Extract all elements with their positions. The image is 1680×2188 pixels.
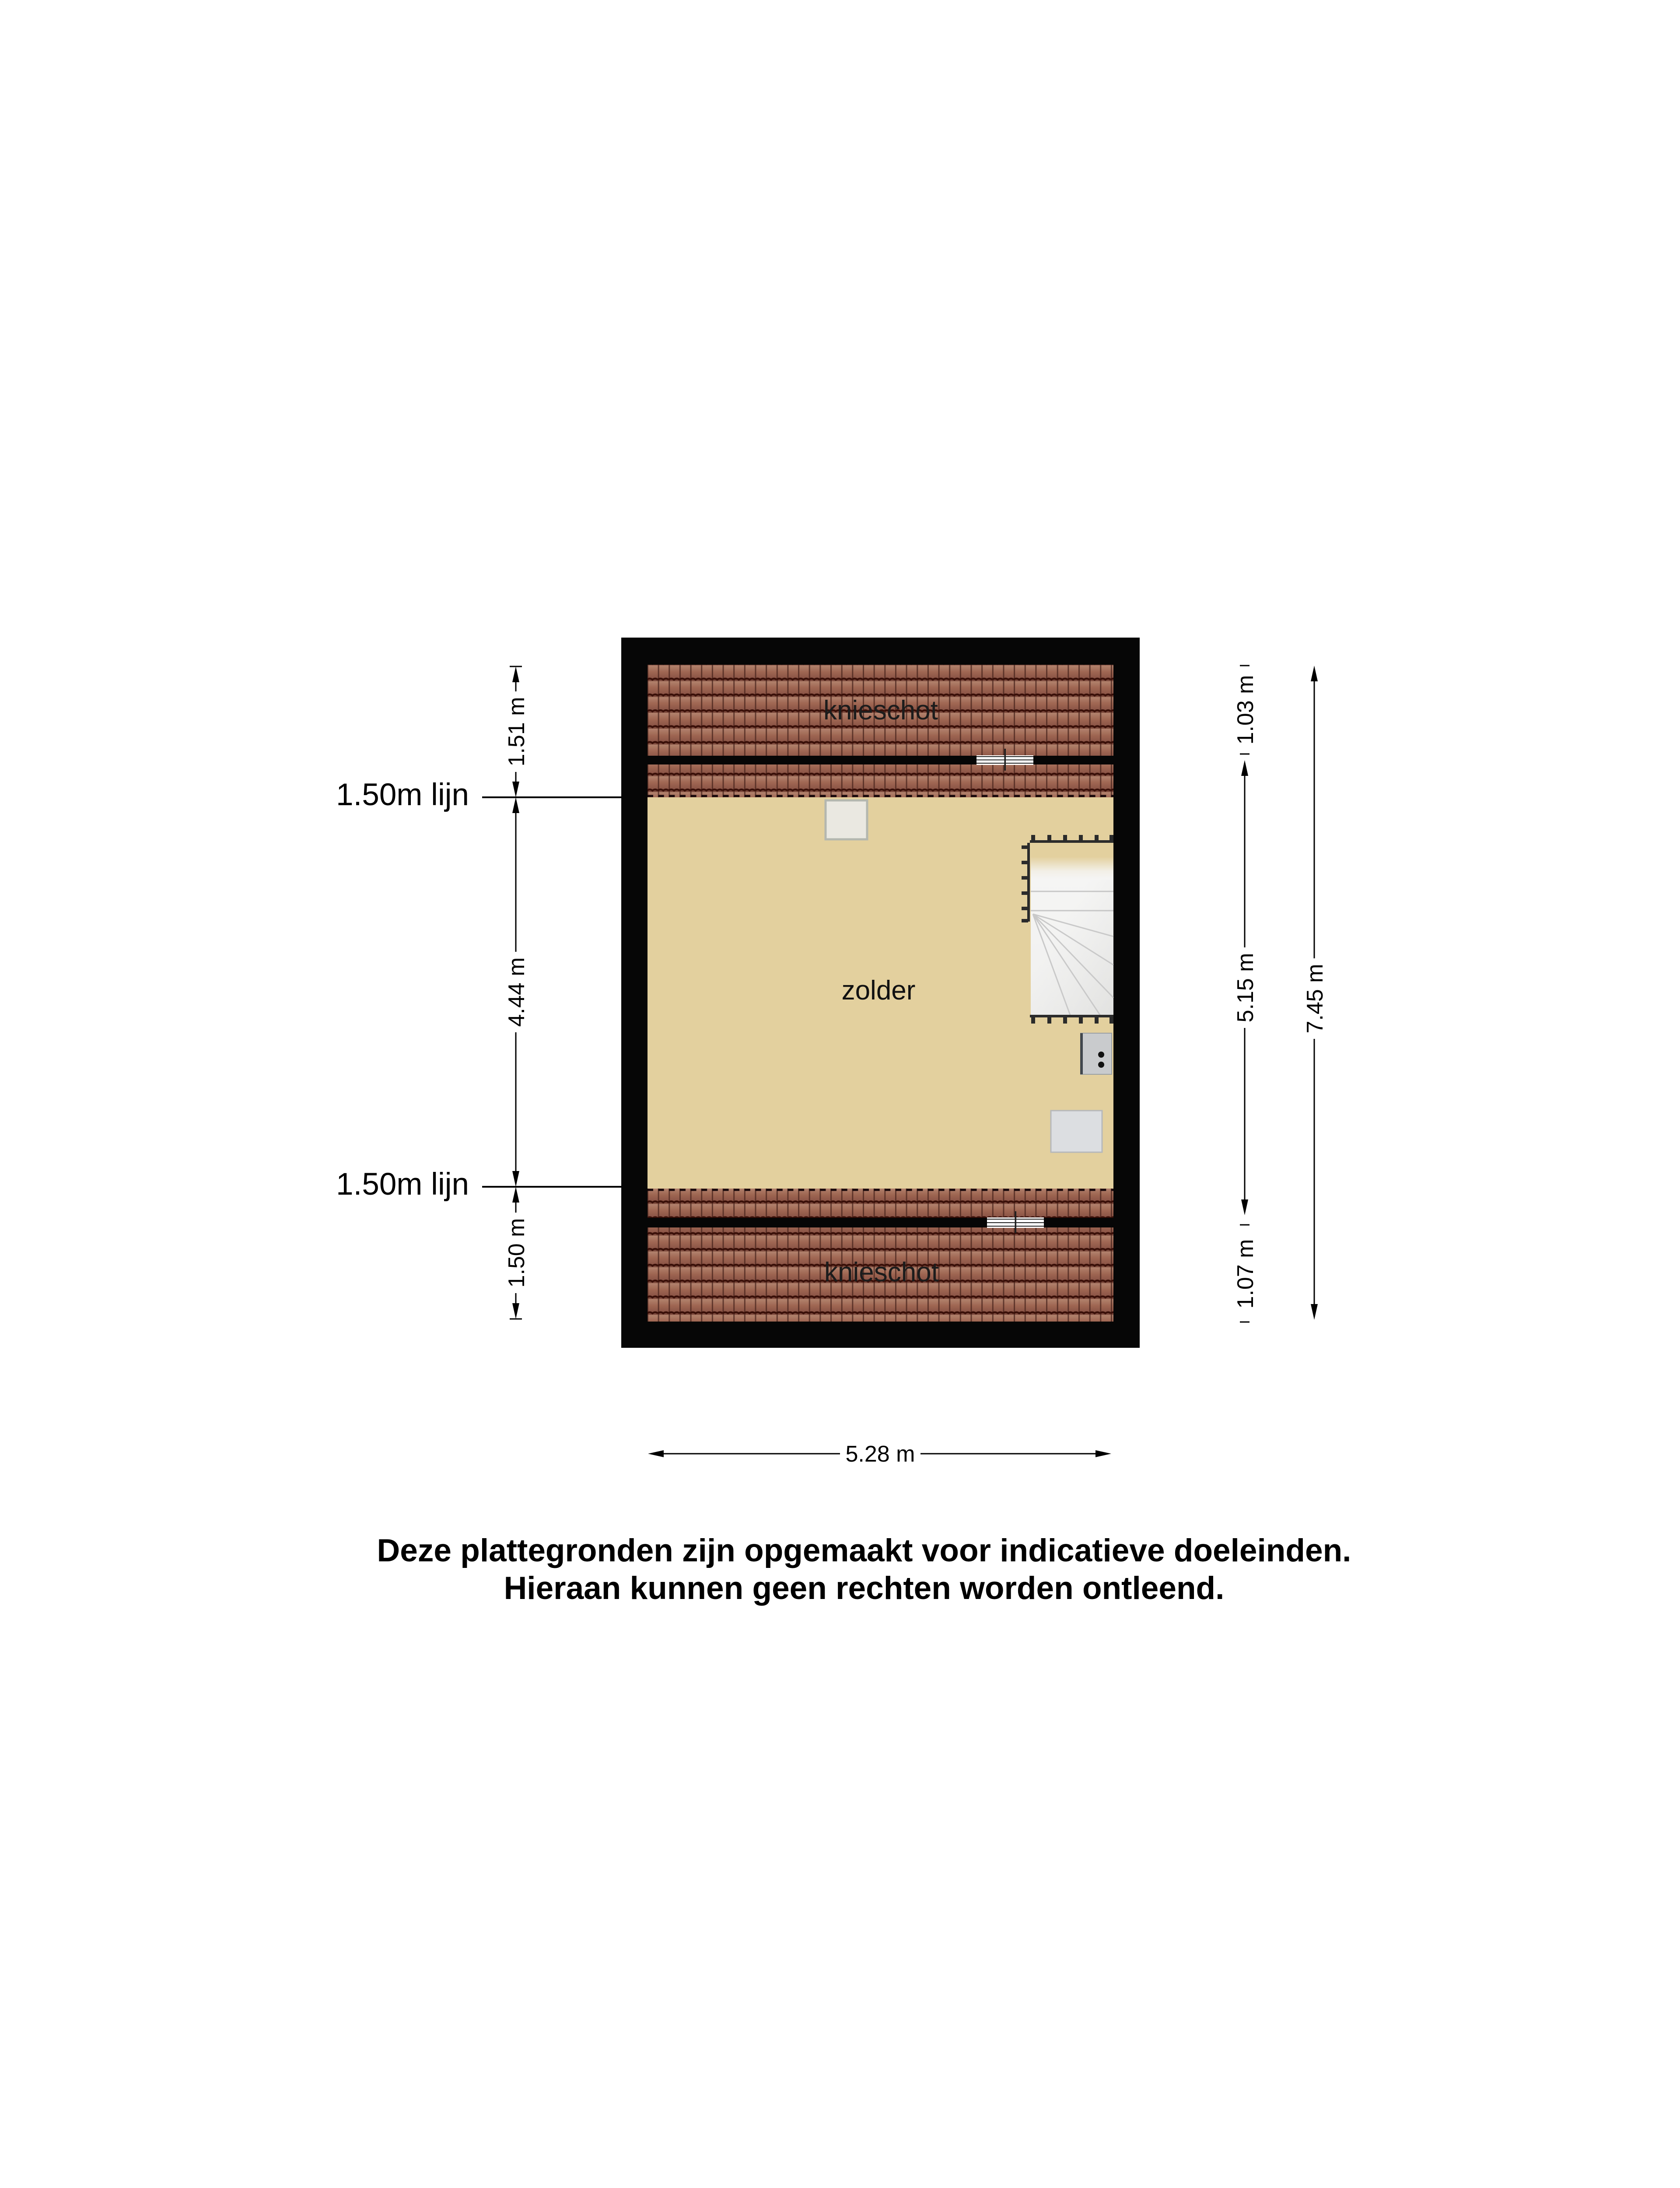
svg-text:Hieraan kunnen geen rechten wo: Hieraan kunnen geen rechten worden ontle… bbox=[504, 1571, 1225, 1606]
svg-text:1.50 m: 1.50 m bbox=[504, 1218, 529, 1288]
svg-text:7.45 m: 7.45 m bbox=[1302, 964, 1328, 1034]
svg-text:1.07 m: 1.07 m bbox=[1233, 1239, 1258, 1309]
svg-text:zolder: zolder bbox=[842, 975, 916, 1006]
svg-text:1.50m lijn: 1.50m lijn bbox=[336, 778, 469, 812]
svg-text:1.50m lijn: 1.50m lijn bbox=[336, 1167, 469, 1202]
svg-text:5.15 m: 5.15 m bbox=[1233, 953, 1258, 1023]
svg-text:1.03 m: 1.03 m bbox=[1233, 675, 1258, 745]
svg-text:knieschot: knieschot bbox=[824, 1257, 939, 1287]
svg-text:4.44 m: 4.44 m bbox=[504, 957, 529, 1027]
svg-text:5.28 m: 5.28 m bbox=[846, 1441, 915, 1467]
svg-text:1.51 m: 1.51 m bbox=[504, 697, 529, 767]
svg-text:Deze plattegronden zijn opgema: Deze plattegronden zijn opgemaakt voor i… bbox=[377, 1533, 1351, 1568]
svg-text:knieschot: knieschot bbox=[823, 695, 938, 726]
